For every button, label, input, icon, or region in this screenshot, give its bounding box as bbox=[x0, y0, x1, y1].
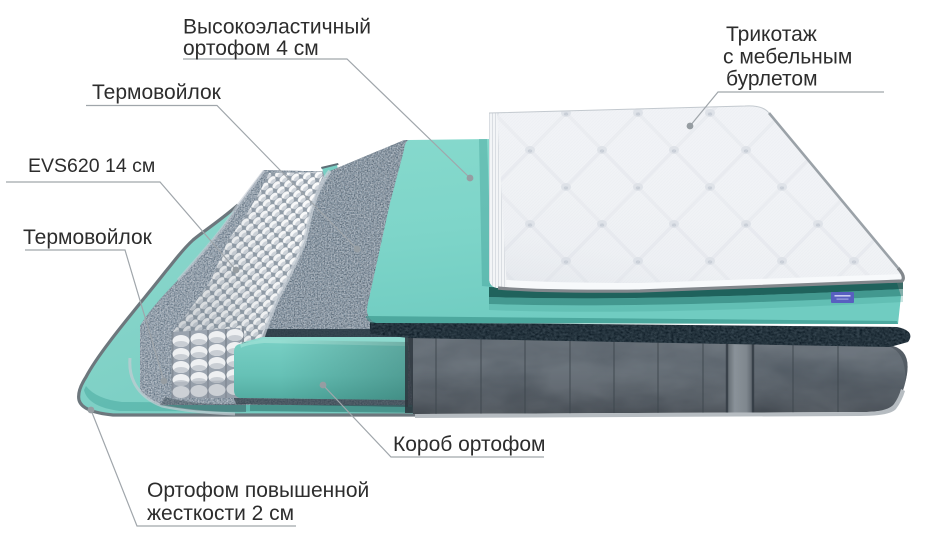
svg-text:Трикотаж: Трикотаж bbox=[726, 23, 817, 46]
svg-text:Высокоэластичный: Высокоэластичный bbox=[183, 16, 371, 39]
svg-text:жесткости 2 см: жесткости 2 см bbox=[147, 502, 294, 525]
svg-text:Ортофом повышенной: Ортофом повышенной bbox=[147, 479, 369, 502]
svg-text:EVS620 14 см: EVS620 14 см bbox=[28, 155, 155, 177]
svg-text:бурлетом: бурлетом bbox=[726, 68, 818, 91]
svg-text:Короб ортофом: Короб ортофом bbox=[393, 433, 546, 456]
svg-text:ортофом 4 см: ортофом 4 см bbox=[183, 37, 319, 60]
svg-text:Термовойлок: Термовойлок bbox=[23, 226, 153, 249]
svg-text:Термовойлок: Термовойлок bbox=[92, 81, 222, 104]
svg-text:с мебельным: с мебельным bbox=[723, 46, 852, 69]
